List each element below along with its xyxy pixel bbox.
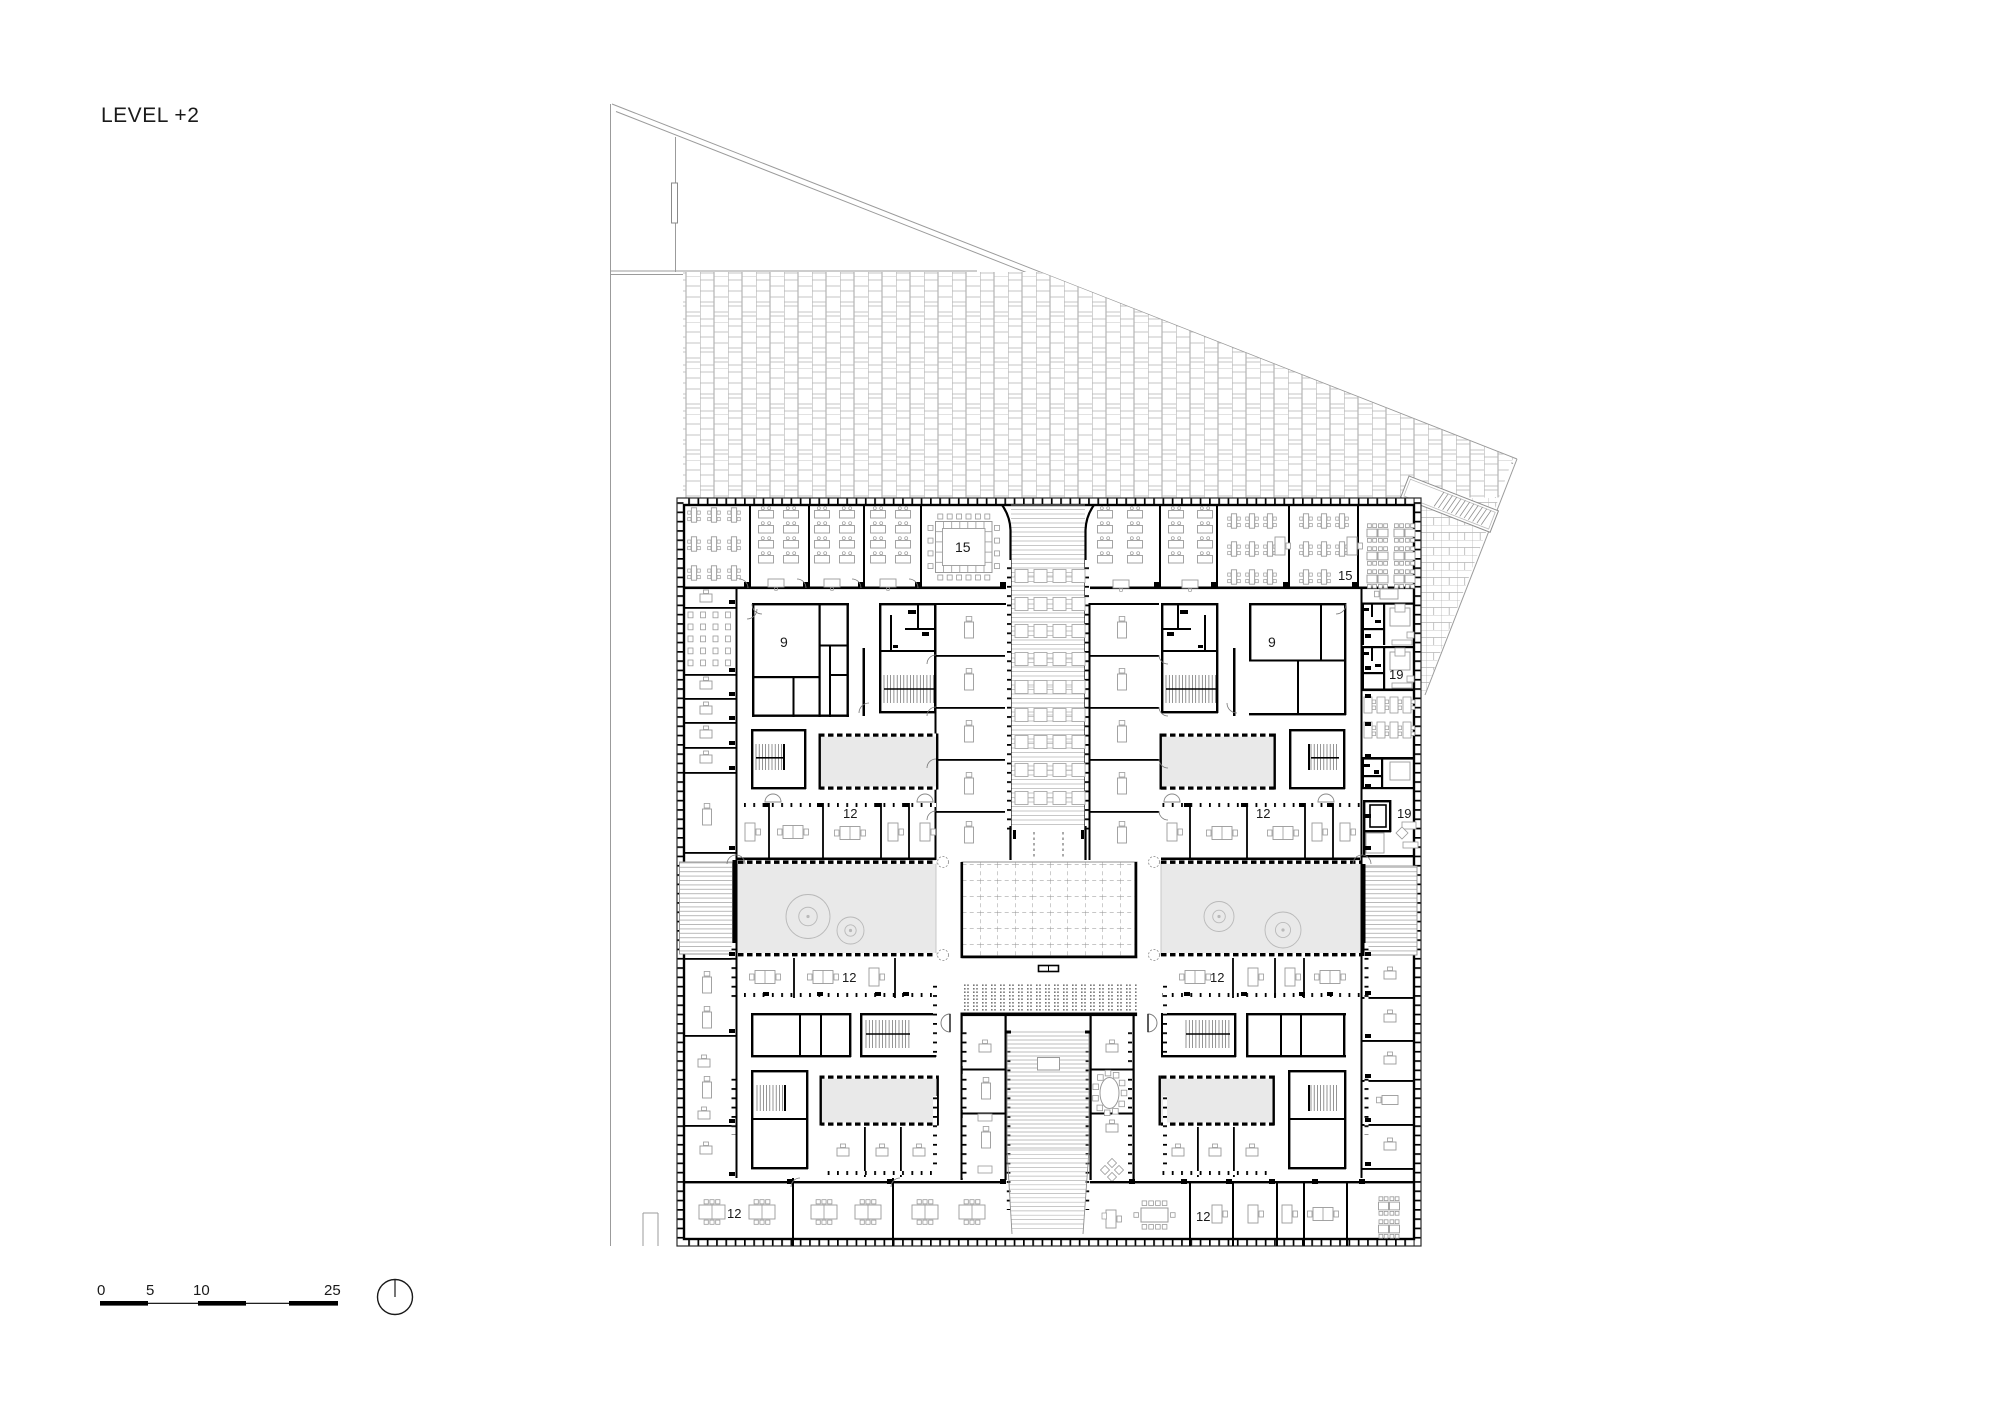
svg-text:19: 19: [1397, 806, 1411, 821]
svg-text:0: 0: [97, 1282, 105, 1299]
svg-text:12: 12: [1256, 806, 1270, 821]
svg-text:19: 19: [1389, 667, 1403, 682]
svg-text:15: 15: [1338, 568, 1352, 583]
svg-text:12: 12: [727, 1206, 741, 1221]
svg-text:25: 25: [324, 1282, 341, 1299]
svg-text:9: 9: [780, 634, 788, 650]
svg-text:5: 5: [146, 1282, 154, 1299]
svg-text:12: 12: [842, 970, 856, 985]
svg-text:12: 12: [1210, 970, 1224, 985]
svg-text:15: 15: [955, 539, 971, 555]
svg-text:LEVEL +2: LEVEL +2: [101, 104, 199, 127]
svg-text:12: 12: [843, 806, 857, 821]
svg-text:10: 10: [193, 1282, 210, 1299]
svg-text:12: 12: [1196, 1209, 1210, 1224]
svg-text:9: 9: [1268, 634, 1276, 650]
